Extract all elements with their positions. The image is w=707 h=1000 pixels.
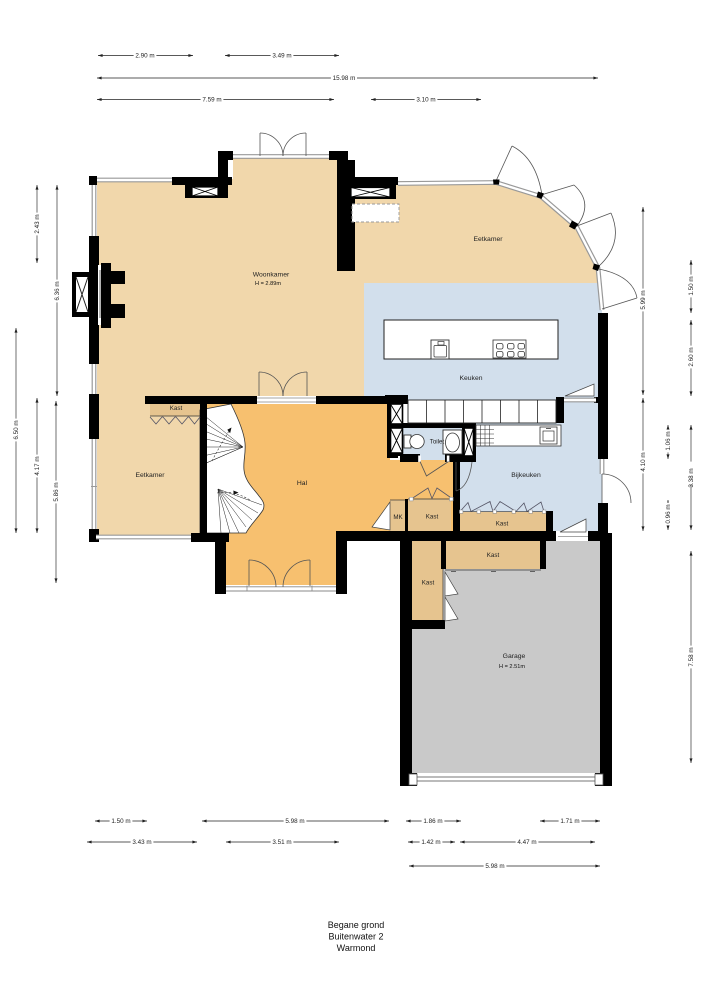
svg-text:5.86 m: 5.86 m	[53, 482, 60, 501]
svg-text:1.86 m: 1.86 m	[423, 818, 442, 825]
svg-text:5.98 m: 5.98 m	[485, 863, 504, 870]
svg-text:3.43 m: 3.43 m	[132, 839, 151, 846]
svg-text:Warmond: Warmond	[337, 943, 376, 953]
svg-text:Buitenwater 2: Buitenwater 2	[328, 932, 383, 942]
svg-text:Kast: Kast	[426, 514, 439, 521]
svg-text:Eetkamer: Eetkamer	[135, 472, 165, 479]
svg-text:7.59 m: 7.59 m	[202, 97, 221, 104]
svg-text:Bijkeuken: Bijkeuken	[511, 472, 541, 479]
svg-text:7.58 m: 7.58 m	[688, 647, 695, 666]
svg-text:4.47 m: 4.47 m	[517, 839, 536, 846]
svg-text:4.10 m: 4.10 m	[640, 452, 647, 471]
svg-text:6.50 m: 6.50 m	[13, 420, 20, 439]
svg-text:4.17 m: 4.17 m	[34, 456, 41, 475]
svg-text:3.10 m: 3.10 m	[416, 97, 435, 104]
svg-text:Woonkamer: Woonkamer	[253, 272, 290, 279]
svg-text:2.60 m: 2.60 m	[688, 347, 695, 366]
svg-text:3.51 m: 3.51 m	[272, 839, 291, 846]
svg-text:H = 2.89m: H = 2.89m	[255, 281, 281, 287]
svg-text:5.98 m: 5.98 m	[285, 818, 304, 825]
svg-text:Begane grond: Begane grond	[328, 920, 385, 930]
svg-text:Eetkamer: Eetkamer	[473, 236, 503, 243]
svg-text:Kast: Kast	[422, 580, 435, 587]
svg-text:2.90 m: 2.90 m	[135, 53, 154, 60]
svg-text:Toilet: Toilet	[430, 439, 445, 446]
svg-text:MK: MK	[393, 514, 403, 521]
svg-text:2.43 m: 2.43 m	[34, 214, 41, 233]
svg-text:Kast: Kast	[487, 552, 500, 559]
svg-text:1.71 m: 1.71 m	[560, 818, 579, 825]
svg-text:0.96 m: 0.96 m	[665, 504, 672, 523]
svg-text:15.98 m: 15.98 m	[333, 75, 356, 82]
svg-text:Hal: Hal	[297, 480, 308, 487]
svg-text:1.42 m: 1.42 m	[421, 839, 440, 846]
svg-text:1.50 m: 1.50 m	[111, 818, 130, 825]
svg-text:H = 2.51m: H = 2.51m	[499, 664, 525, 670]
svg-text:Kast: Kast	[170, 405, 183, 412]
svg-text:6.36 m: 6.36 m	[54, 281, 61, 300]
svg-text:3.38 m: 3.38 m	[688, 468, 695, 487]
svg-text:Keuken: Keuken	[459, 375, 482, 382]
svg-text:3.49 m: 3.49 m	[272, 53, 291, 60]
svg-text:1.06 m: 1.06 m	[665, 431, 672, 450]
svg-text:5.99 m: 5.99 m	[640, 290, 647, 309]
svg-text:Garage: Garage	[503, 653, 526, 660]
svg-text:Kast: Kast	[496, 521, 509, 528]
svg-text:1.50 m: 1.50 m	[688, 276, 695, 295]
